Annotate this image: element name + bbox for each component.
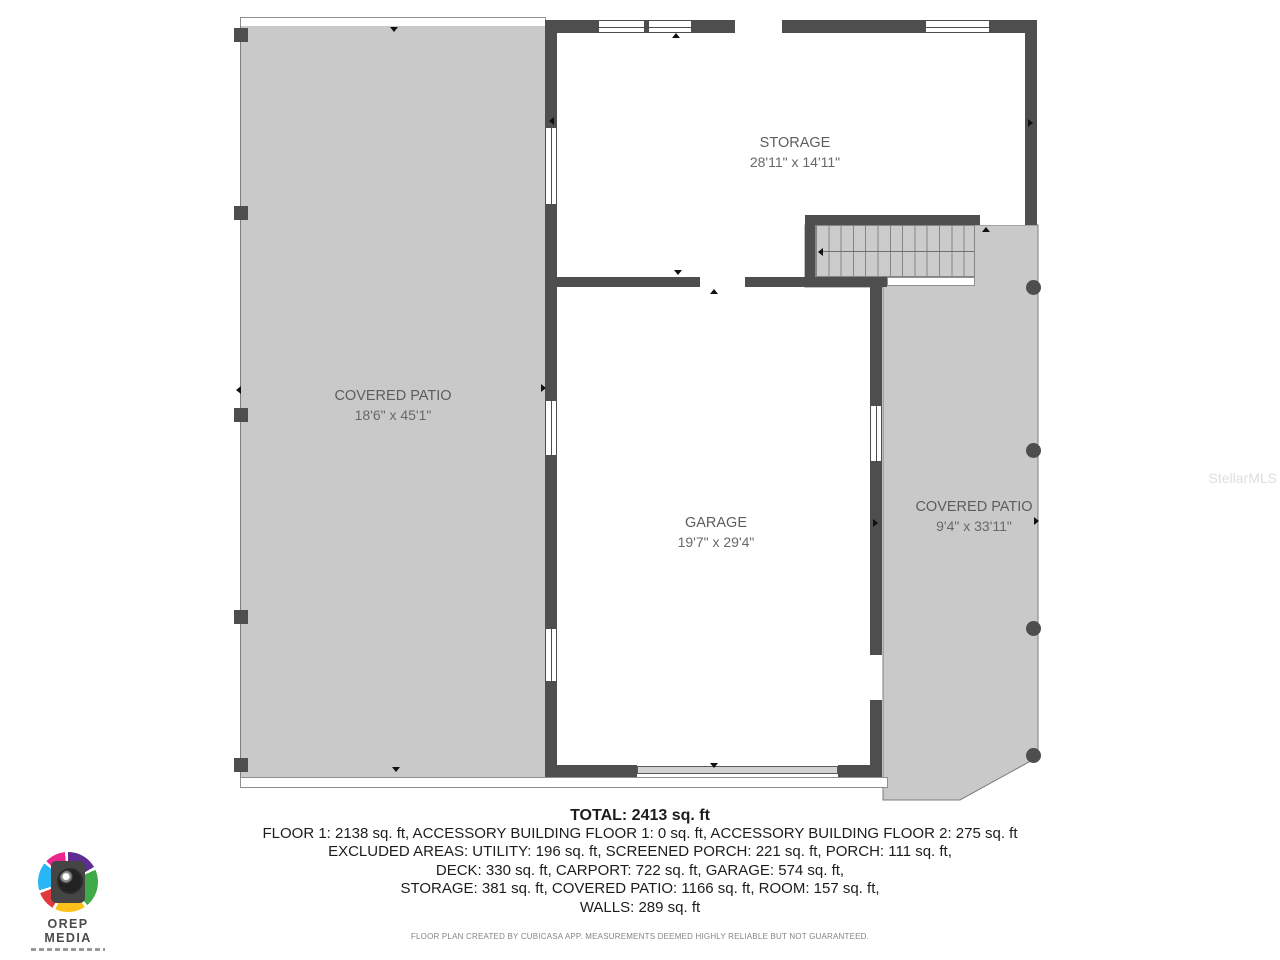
window [545, 400, 557, 456]
direction-arrow-icon [1028, 119, 1033, 127]
direction-arrow-icon [236, 386, 241, 394]
camera-lens-icon [57, 868, 83, 894]
door-opening [980, 215, 1025, 225]
orep-media-logo: OREP MEDIA [25, 852, 111, 951]
direction-arrow-icon [674, 270, 682, 275]
window [545, 127, 557, 205]
direction-arrow-icon [549, 117, 554, 125]
logo-tagline [31, 948, 105, 951]
garage-door [637, 766, 838, 774]
room-name: COVERED PATIO [283, 387, 503, 406]
total-area: TOTAL: 2413 sq. ft [0, 806, 1280, 825]
room-name: GARAGE [606, 514, 826, 533]
direction-arrow-icon [710, 763, 718, 768]
area-summary: TOTAL: 2413 sq. ft FLOOR 1: 2138 sq. ft,… [0, 806, 1280, 917]
patio-post [234, 610, 248, 624]
disclaimer-text: FLOOR PLAN CREATED BY CUBICASA APP. MEAS… [0, 932, 1280, 941]
room-dimensions: 28'11" x 14'11" [685, 153, 905, 172]
door-opening [700, 277, 745, 287]
camera-logo-icon [38, 852, 98, 912]
room-label-storage: STORAGE 28'11" x 14'11" [685, 134, 905, 172]
direction-arrow-icon [710, 289, 718, 294]
room-dimensions: 9'4" x 33'11" [864, 517, 1084, 536]
room-dimensions: 18'6" x 45'1" [283, 406, 503, 425]
window [925, 20, 990, 33]
logo-title: OREP MEDIA [25, 917, 111, 945]
stairs-open-edge [887, 277, 975, 286]
patio-post [234, 28, 248, 42]
direction-arrow-icon [390, 27, 398, 32]
room-label-covered-patio-right: COVERED PATIO 9'4" x 33'11" [864, 498, 1084, 536]
room-name: STORAGE [685, 134, 905, 153]
room-dimensions: 19'7" x 29'4" [606, 533, 826, 552]
patio-post [1026, 621, 1041, 636]
direction-arrow-icon [672, 33, 680, 38]
stairs-direction-line [820, 251, 974, 252]
window [870, 405, 882, 462]
room-label-garage: GARAGE 19'7" x 29'4" [606, 514, 826, 552]
door-opening [735, 20, 782, 33]
window [598, 20, 645, 33]
room-label-covered-patio-left: COVERED PATIO 18'6" x 45'1" [283, 387, 503, 425]
porch-open-edge-bottom [240, 777, 888, 788]
door-opening [870, 655, 882, 700]
window [545, 628, 557, 682]
wall-garage-south-right [838, 765, 882, 777]
wall-garage-south-left [545, 765, 637, 777]
patio-post [1026, 443, 1041, 458]
mls-watermark: StellarMLS [1209, 470, 1277, 486]
patio-post [234, 206, 248, 220]
patio-post [234, 758, 248, 772]
stairs-direction-arrow-icon [818, 248, 823, 256]
summary-line: STORAGE: 381 sq. ft, COVERED PATIO: 1166… [0, 880, 1280, 898]
camera-body-icon [51, 861, 85, 903]
patio-post [1026, 280, 1041, 295]
summary-line: WALLS: 289 sq. ft [0, 899, 1280, 917]
direction-arrow-icon [982, 227, 990, 232]
patio-post [1026, 748, 1041, 763]
room-name: COVERED PATIO [864, 498, 1084, 517]
summary-line: FLOOR 1: 2138 sq. ft, ACCESSORY BUILDING… [0, 825, 1280, 843]
summary-line: DECK: 330 sq. ft, CARPORT: 722 sq. ft, G… [0, 862, 1280, 880]
stairs [815, 225, 975, 277]
patio-post [234, 408, 248, 422]
direction-arrow-icon [392, 767, 400, 772]
window [648, 20, 692, 33]
direction-arrow-icon [541, 384, 546, 392]
summary-line: EXCLUDED AREAS: UTILITY: 196 sq. ft, SCR… [0, 843, 1280, 861]
